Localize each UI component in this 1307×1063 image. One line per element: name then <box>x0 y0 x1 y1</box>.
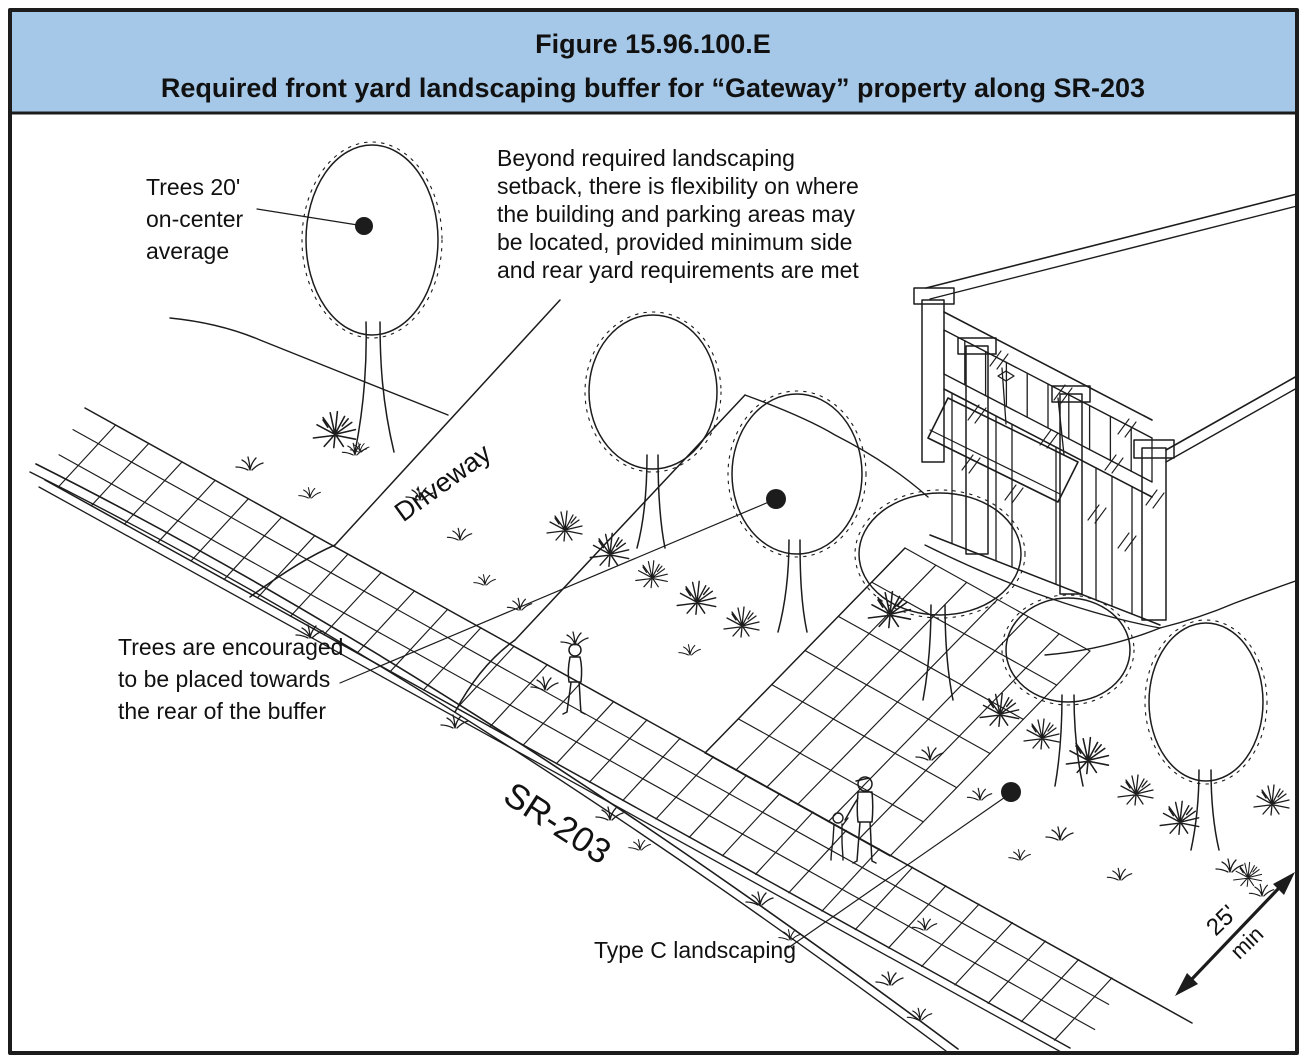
driveway-right-edge <box>515 395 745 640</box>
pedestrians <box>563 644 876 863</box>
right-buffer-top-edge <box>1045 628 1160 655</box>
figure-title: Figure 15.96.100.E <box>535 29 771 59</box>
tree-marker-dot <box>766 489 786 509</box>
label-line: average <box>146 238 229 264</box>
label-line: Trees are encouraged <box>118 634 343 660</box>
left-buffer-edge <box>170 318 448 415</box>
building-pillar <box>922 300 944 462</box>
dimension-arrow <box>1175 872 1295 996</box>
figure-subtitle: Required front yard landscaping buffer f… <box>161 73 1145 103</box>
note-line: be located, provided minimum side <box>497 229 852 255</box>
building-pillar <box>1060 394 1082 594</box>
note-line: the building and parking areas may <box>497 201 856 227</box>
building-corner-post <box>1142 448 1166 620</box>
landscape-buffer-illustration: 25' min Trees 20' on-center average Beyo… <box>0 0 1307 1063</box>
label-line: on-center <box>146 206 244 232</box>
tree <box>302 142 442 452</box>
building-lines <box>925 194 1297 628</box>
sidewalk-street-edge <box>45 480 1070 1048</box>
note-flexibility: Beyond required landscaping setback, the… <box>497 145 859 283</box>
landscaping-marker-dot <box>1001 782 1021 802</box>
figure-15-96-100-e: 25' min Trees 20' on-center average Beyo… <box>0 0 1307 1063</box>
pedestrian-adult <box>845 777 876 863</box>
label-type-c-landscaping: Type C landscaping <box>594 937 796 963</box>
storefront-building <box>914 288 1174 620</box>
label-line: Trees 20' <box>146 174 240 200</box>
note-line: setback, there is flexibility on where <box>497 173 859 199</box>
tree-marker-dot <box>355 217 373 235</box>
label-trees-rear: Trees are encouraged to be placed toward… <box>118 634 343 724</box>
label-line: to be placed towards <box>118 666 330 692</box>
tree <box>728 391 866 632</box>
label-trees-spacing: Trees 20' on-center average <box>146 174 244 264</box>
leader-line <box>788 793 1011 948</box>
tree <box>1145 620 1267 850</box>
label-street-sr-203: SR-203 <box>497 775 618 872</box>
note-line: Beyond required landscaping <box>497 145 795 171</box>
label-line: the rear of the buffer <box>118 698 326 724</box>
pillar-capital <box>914 288 954 304</box>
tree <box>585 312 721 548</box>
building-side-grass-edge <box>1160 577 1307 628</box>
note-line: and rear yard requirements are met <box>497 257 859 283</box>
driveway-left-edge <box>335 300 560 545</box>
leader-line <box>257 209 364 226</box>
tree <box>855 490 1025 700</box>
label-driveway: Driveway <box>389 438 497 528</box>
